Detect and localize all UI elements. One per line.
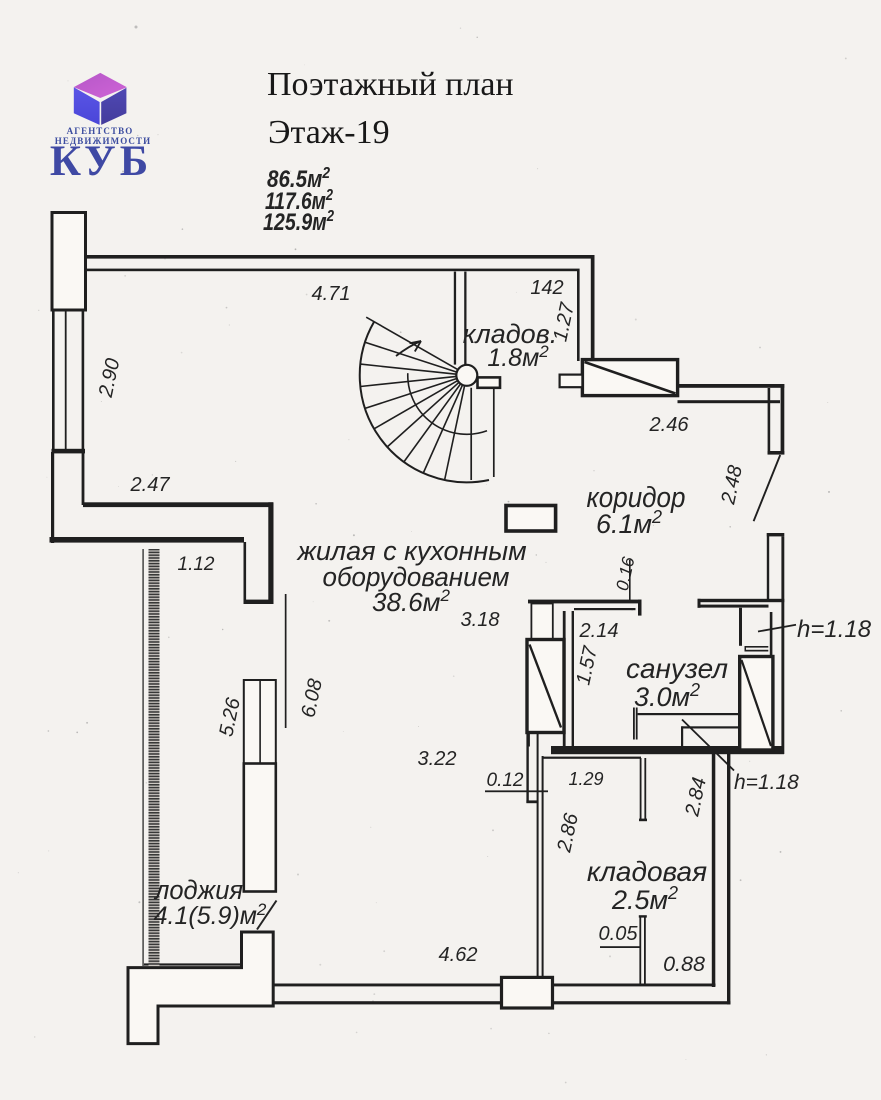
svg-text:3.18: 3.18 bbox=[461, 609, 500, 631]
svg-text:Этаж-19: Этаж-19 bbox=[268, 114, 390, 151]
svg-text:АГЕНТСТВО: АГЕНТСТВО bbox=[67, 126, 134, 136]
svg-text:2.5м2: 2.5м2 bbox=[611, 883, 678, 915]
svg-text:0.05: 0.05 bbox=[599, 923, 639, 945]
svg-text:кладовая: кладовая bbox=[587, 856, 707, 887]
svg-text:лоджия: лоджия bbox=[153, 875, 243, 905]
svg-text:4.71: 4.71 bbox=[312, 283, 351, 305]
svg-text:Поэтажный план: Поэтажный план bbox=[267, 66, 514, 103]
svg-text:38.6м2: 38.6м2 bbox=[372, 586, 450, 617]
svg-text:санузел: санузел bbox=[626, 653, 728, 684]
svg-text:125.9м2: 125.9м2 bbox=[263, 208, 334, 236]
svg-text:2.47: 2.47 bbox=[130, 474, 171, 496]
svg-text:h=1.18: h=1.18 bbox=[797, 616, 872, 643]
svg-text:142: 142 bbox=[530, 277, 563, 299]
svg-text:0.88: 0.88 bbox=[663, 952, 705, 976]
svg-text:h=1.18: h=1.18 bbox=[734, 771, 799, 794]
svg-text:0.12: 0.12 bbox=[487, 770, 524, 791]
svg-text:1.29: 1.29 bbox=[568, 769, 603, 789]
svg-text:4.1(5.9)м2: 4.1(5.9)м2 bbox=[154, 900, 267, 930]
svg-text:3.22: 3.22 bbox=[418, 748, 457, 770]
svg-text:1.12: 1.12 bbox=[178, 554, 215, 575]
svg-text:2.14: 2.14 bbox=[579, 620, 619, 642]
svg-text:4.62: 4.62 bbox=[439, 944, 478, 966]
svg-text:2.46: 2.46 bbox=[649, 414, 690, 436]
svg-text:КУБ: КУБ bbox=[50, 138, 152, 185]
